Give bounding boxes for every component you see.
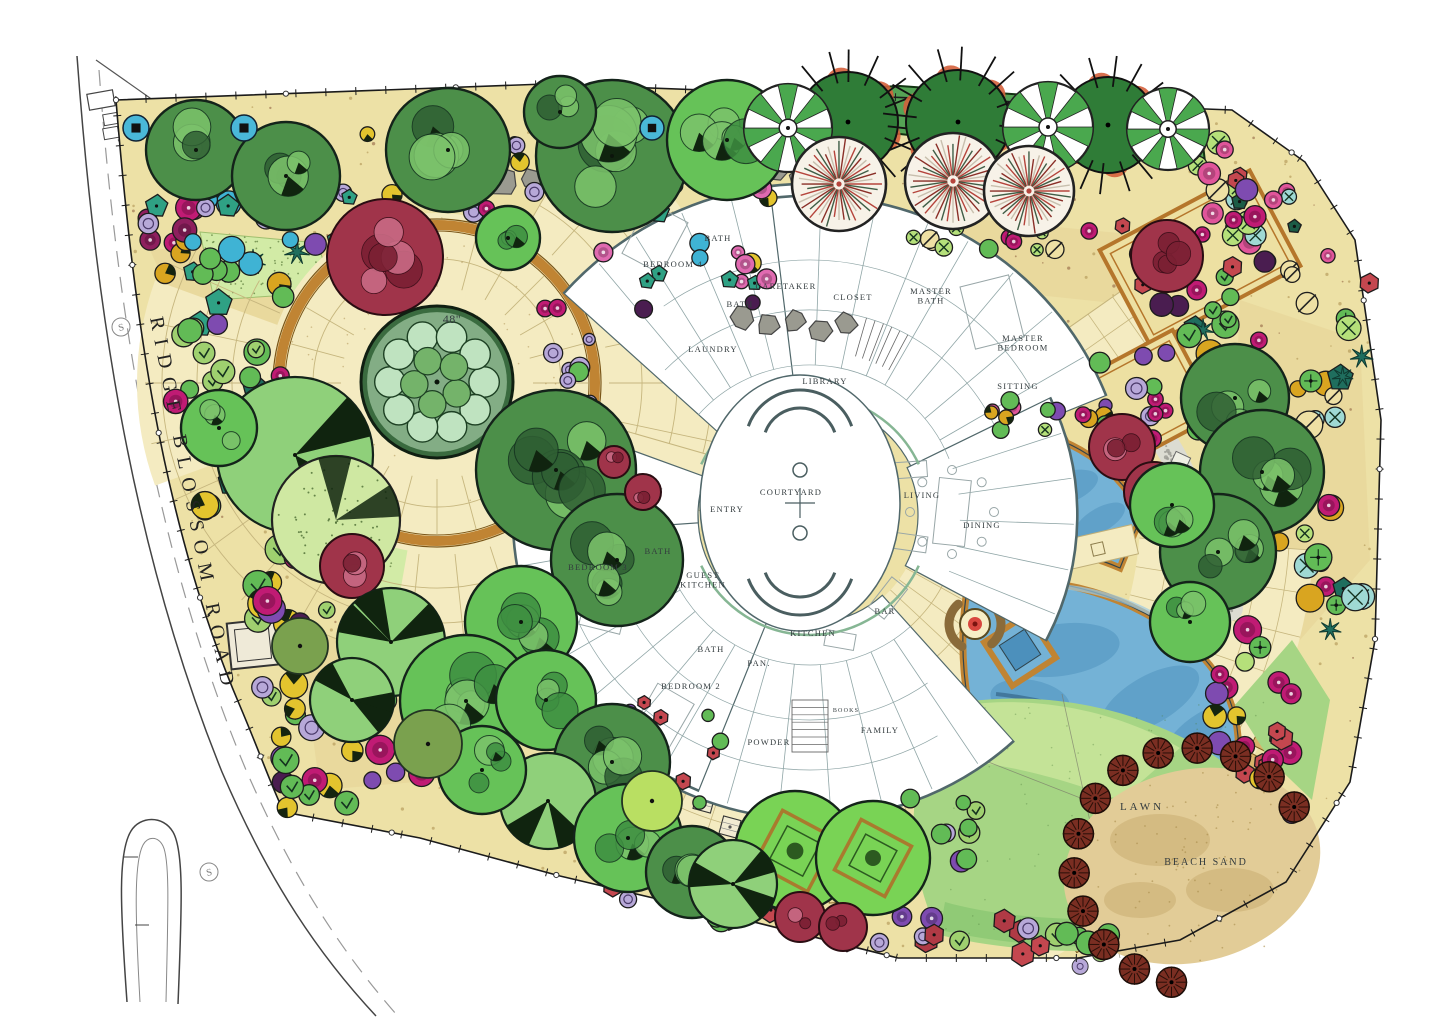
plan-label: GUESTKITCHEN: [680, 570, 726, 590]
tree-bright: [1150, 582, 1230, 662]
plan-label: DINING: [963, 520, 1000, 530]
plan-label: SITTING: [997, 381, 1038, 391]
tree-wedgeT: [689, 840, 777, 928]
plan-label: LIBRARY: [802, 376, 847, 386]
tree-canopy: [524, 76, 596, 148]
tree-bright: [1130, 463, 1214, 547]
tree-fire: [984, 146, 1074, 236]
plan-label: BEACH SAND: [1164, 857, 1248, 868]
tree-fire: [792, 137, 886, 231]
plan-label: CLOSET: [833, 292, 872, 302]
plan-label: PAN.: [747, 658, 770, 668]
tree-red: [819, 903, 867, 951]
tree-sqblue: [640, 116, 664, 140]
tree-red: [320, 534, 384, 598]
plan-label: BATH: [698, 644, 725, 654]
plan-label: BOOKS: [833, 708, 859, 714]
landscape-site-plan: SSBEDROOM 4BATHCARETAKERBATHLAUNDRYCLOSE…: [0, 0, 1440, 1020]
plan-label: FAMILY: [861, 725, 899, 735]
tree-canopy: [146, 100, 246, 200]
plan-label: BEDROOM 3: [568, 562, 628, 572]
plan-canvas: SSBEDROOM 4BATHCARETAKERBATHLAUNDRYCLOSE…: [0, 0, 1440, 1020]
svg-text:S: S: [205, 867, 213, 879]
plan-label: LAWN: [1120, 801, 1164, 813]
plan-label: BATH: [727, 299, 754, 309]
plan-label: BEDROOM 4: [643, 259, 703, 269]
tree-planter: [816, 801, 930, 915]
plan-label: BATH: [645, 546, 672, 556]
plan-label: BAR: [874, 606, 895, 616]
plan-label: LAUNDRY: [688, 344, 738, 354]
tree-red: [775, 892, 825, 942]
tree-pinwheel: [1127, 88, 1209, 170]
tree-red: [1131, 220, 1203, 292]
tree-sqblue: [123, 115, 149, 141]
tree-bright: [476, 206, 540, 270]
svg-text:S: S: [117, 322, 125, 334]
plan-label: ENTRY: [710, 504, 744, 514]
plan-label: MASTERBEDROOM: [998, 333, 1049, 353]
plan-label: KITCHEN: [790, 628, 836, 638]
tree-olive: [272, 618, 328, 674]
plan-label: POWDER: [747, 737, 790, 747]
tree-olive: [394, 710, 462, 778]
tree-red: [327, 199, 443, 315]
tree-lime: [622, 771, 682, 831]
plan-label: COURTYARD: [760, 487, 822, 497]
tree-sqblue: [231, 115, 257, 141]
plan-label: BEDROOM 2: [661, 681, 721, 691]
tree-canopy: [386, 88, 510, 212]
plan-label: 48": [443, 312, 461, 326]
tree-wedgeT: [310, 658, 394, 742]
plan-label: CARETAKER: [755, 281, 816, 291]
tree-red: [598, 446, 630, 478]
tree-red: [625, 474, 661, 510]
plan-label: BATH: [705, 233, 732, 243]
plan-label: LIVING: [904, 490, 940, 500]
